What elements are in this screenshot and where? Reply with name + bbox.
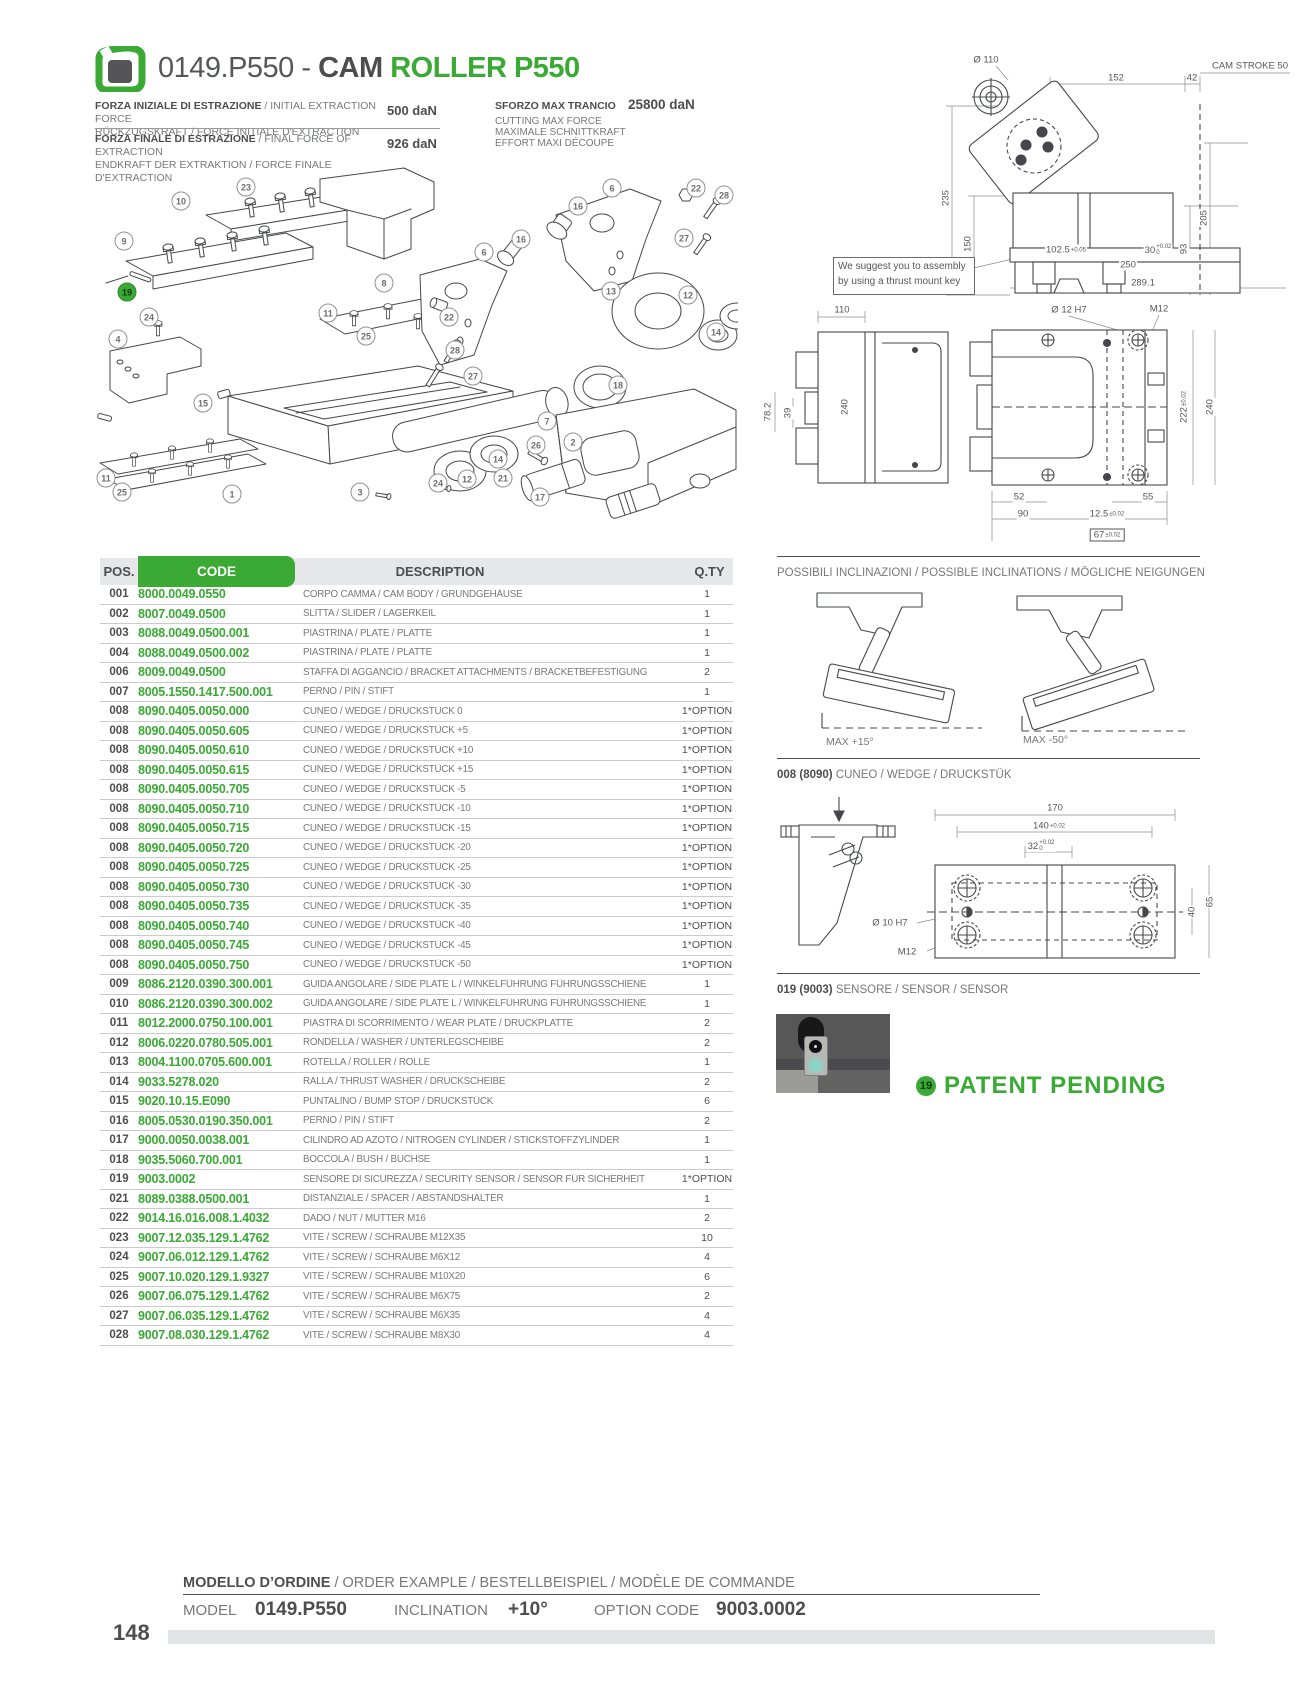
page-title: 0149.P550 - CAM ROLLER P550	[158, 52, 580, 85]
cell-code: 9035.5060.700.001	[138, 1153, 303, 1167]
cell-desc: CORPO CAMMA / CAM BODY / GRUNDGEHÄUSE	[303, 589, 681, 600]
catalog-page: 0149.P550 - CAM ROLLER P550 FORZA INIZIA…	[0, 0, 1303, 1683]
table-row: 0199003.0002SENSORE DI SICUREZZA / SECUR…	[100, 1170, 733, 1190]
cell-desc: BOCCOLA / BUSH / BUCHSE	[303, 1154, 681, 1165]
dimension-label: 289.1	[1130, 278, 1156, 289]
parts-table-body: 0018000.0049.0550CORPO CAMMA / CAM BODY …	[100, 585, 733, 1346]
part-callout-17: 17	[531, 488, 550, 507]
cell-desc: CUNEO / WEDGE / DRUCKSTÜCK -35	[303, 901, 681, 912]
order-heading-rest: / ORDER EXAMPLE / BESTELLBEISPIEL / MODÈ…	[330, 1575, 794, 1591]
part-callout-24: 24	[140, 308, 159, 327]
cell-desc: CUNEO / WEDGE / DRUCKSTÜCK -15	[303, 823, 681, 834]
cell-desc: SENSORE DI SICUREZZA / SECURITY SENSOR /…	[303, 1174, 681, 1185]
cell-pos: 025	[100, 1271, 138, 1283]
cell-pos: 014	[100, 1076, 138, 1088]
cell-desc: DISTANZIALE / SPACER / ABSTANDSHALTER	[303, 1193, 681, 1204]
cell-code: 8090.0405.0050.705	[138, 782, 303, 796]
cell-code: 8005.0530.0190.350.001	[138, 1114, 303, 1128]
cell-qty: 1	[681, 608, 733, 620]
cell-code: 8090.0405.0050.715	[138, 821, 303, 835]
cell-code: 9014.16.016.008.1.4032	[138, 1211, 303, 1225]
table-row: 0088090.0405.0050.735CUNEO / WEDGE / DRU…	[100, 897, 733, 917]
cell-code: 8007.0049.0500	[138, 607, 303, 621]
cell-desc: CUNEO / WEDGE / DRUCKSTÜCK +5	[303, 725, 681, 736]
part-callout-23: 23	[237, 178, 256, 197]
max-cut-value: 25800 daN	[628, 97, 695, 112]
cell-code: 8086.2120.0390.300.001	[138, 977, 303, 991]
cell-qty: 2	[681, 1076, 733, 1088]
cell-desc: CUNEO / WEDGE / DRUCKSTÜCK -40	[303, 920, 681, 931]
title-roller: ROLLER P550	[390, 52, 580, 84]
wedge-art	[777, 795, 1227, 970]
section-divider	[777, 973, 1200, 974]
table-row: 0088090.0405.0050.705CUNEO / WEDGE / DRU…	[100, 780, 733, 800]
cell-qty: 1*OPTION	[681, 803, 733, 815]
inclinations-heading: POSSIBILI INCLINAZIONI / POSSIBLE INCLIN…	[777, 567, 1205, 579]
inclination-art	[777, 588, 1200, 738]
sensor-body	[804, 1036, 828, 1076]
max-cut-title: SFORZO MAX TRANCIO	[495, 100, 616, 112]
part-callout-19: 19	[118, 283, 137, 302]
front-view-drawing: 11078.239240Ø 12 H7M12222±0.02240529012.…	[755, 295, 1225, 545]
cell-code: 8090.0405.0050.730	[138, 880, 303, 894]
part-callout-22: 22	[440, 308, 459, 327]
cell-desc: CUNEO / WEDGE / DRUCKSTÜCK 0	[303, 706, 681, 717]
table-row: 0159020.10.15.E090PUNTALINO / BUMP STOP …	[100, 1092, 733, 1112]
cell-qty: 1*OPTION	[681, 744, 733, 756]
cell-desc: CUNEO / WEDGE / DRUCKSTÜCK +15	[303, 764, 681, 775]
wedge-heading: 008 (8090) CUNEO / WEDGE / DRUCKSTÜK	[777, 769, 1012, 781]
table-row: 0088090.0405.0050.740CUNEO / WEDGE / DRU…	[100, 917, 733, 937]
dimension-label: 222±0.02	[1179, 390, 1190, 424]
cell-code: 9007.06.075.129.1.4762	[138, 1289, 303, 1303]
cell-code: 9007.12.035.129.1.4762	[138, 1231, 303, 1245]
cell-desc: RONDELLA / WASHER / UNTERLEGSCHEIBE	[303, 1037, 681, 1048]
table-row: 0018000.0049.0550CORPO CAMMA / CAM BODY …	[100, 585, 733, 605]
cell-desc: PIASTRA DI SCORRIMENTO / WEAR PLATE / DR…	[303, 1018, 681, 1029]
part-callout-9: 9	[115, 232, 134, 251]
cell-qty: 1	[681, 588, 733, 600]
cell-desc: PUNTALINO / BUMP STOP / DRUCKSTÜCK	[303, 1096, 681, 1107]
dimension-label: Ø 10 H7	[871, 918, 908, 929]
spec-divider	[95, 128, 440, 129]
cell-pos: 021	[100, 1193, 138, 1205]
dimension-label: Ø 12 H7	[1050, 305, 1087, 316]
cell-qty: 1	[681, 1134, 733, 1146]
part-callout-11: 11	[97, 469, 116, 488]
max-cut-line-fr: EFFORT MAXI DÉCOUPE	[495, 138, 614, 149]
part-callout-6: 6	[603, 179, 622, 198]
cell-pos: 028	[100, 1329, 138, 1341]
table-row: 0189035.5060.700.001BOCCOLA / BUSH / BUC…	[100, 1151, 733, 1171]
cell-code: 9033.5278.020	[138, 1075, 303, 1089]
column-header-qty: Q.TY	[686, 558, 733, 585]
part-callout-6: 6	[475, 243, 494, 262]
cell-desc: CUNEO / WEDGE / DRUCKSTÜCK -5	[303, 784, 681, 795]
table-row: 0088090.0405.0050.710CUNEO / WEDGE / DRU…	[100, 800, 733, 820]
cell-desc: CILINDRO AD AZOTO / NITROGEN CYLINDER / …	[303, 1135, 681, 1146]
cell-pos: 008	[100, 725, 138, 737]
table-row: 0088090.0405.0050.615CUNEO / WEDGE / DRU…	[100, 761, 733, 781]
wedge-drawing: 170140+0.0232+0.020Ø 10 H7M124065	[777, 795, 1227, 970]
cell-desc: STAFFA DI AGGANCIO / BRACKET ATTACHMENTS…	[303, 667, 681, 678]
cell-qty: 1	[681, 1193, 733, 1205]
title-code: 0149.P550 -	[158, 52, 318, 84]
cell-code: 8090.0405.0050.615	[138, 763, 303, 777]
cell-pos: 008	[100, 783, 138, 795]
cell-pos: 013	[100, 1056, 138, 1068]
cell-desc: VITE / SCREW / SCHRAUBE M12X35	[303, 1232, 681, 1243]
patent-pending-label: PATENT PENDING	[944, 1072, 1166, 1100]
dimension-label: 110	[833, 305, 850, 316]
parts-table-header: POS. CODE DESCRIPTION Q.TY	[100, 558, 733, 585]
cell-qty: 1*OPTION	[681, 939, 733, 951]
cell-desc: CUNEO / WEDGE / DRUCKSTÜCK +10	[303, 745, 681, 756]
cell-pos: 024	[100, 1251, 138, 1263]
cell-pos: 008	[100, 744, 138, 756]
cell-pos: 010	[100, 998, 138, 1010]
cell-qty: 1	[681, 998, 733, 1010]
option-code-label: OPTION CODE	[594, 1602, 699, 1619]
cell-qty: 1*OPTION	[681, 822, 733, 834]
part-callout-27: 27	[675, 229, 694, 248]
cell-desc: RALLA / THRUST WASHER / DRUCKSCHEIBE	[303, 1076, 681, 1087]
cell-code: 8088.0049.0500.001	[138, 626, 303, 640]
dimension-label: 102.5+0.05	[1045, 245, 1087, 256]
cell-pos: 018	[100, 1154, 138, 1166]
cell-code: 9020.10.15.E090	[138, 1094, 303, 1108]
dimension-label: 235	[941, 189, 952, 207]
cell-pos: 008	[100, 959, 138, 971]
table-row: 0088090.0405.0050.715CUNEO / WEDGE / DRU…	[100, 819, 733, 839]
cell-pos: 007	[100, 686, 138, 698]
dimension-label: 12.5±0.02	[1089, 509, 1125, 520]
dimension-label: 78.2	[763, 402, 774, 423]
cell-qty: 1*OPTION	[681, 842, 733, 854]
part-callout-25: 25	[357, 327, 376, 346]
cell-code: 9007.10.020.129.1.9327	[138, 1270, 303, 1284]
cell-code: 8004.1100.0705.600.001	[138, 1055, 303, 1069]
cell-qty: 2	[681, 1037, 733, 1049]
cell-pos: 008	[100, 881, 138, 893]
front-view-art	[755, 295, 1225, 545]
cell-desc: VITE / SCREW / SCHRAUBE M6X12	[303, 1252, 681, 1263]
cell-code: 8006.0220.0780.505.001	[138, 1036, 303, 1050]
table-row: 0088090.0405.0050.750CUNEO / WEDGE / DRU…	[100, 956, 733, 976]
cell-desc: GUIDA ANGOLARE / SIDE PLATE L / WINKELFÜ…	[303, 979, 681, 990]
part-callout-12: 12	[458, 470, 477, 489]
cell-pos: 008	[100, 822, 138, 834]
sensor-heading: 019 (9003) SENSORE / SENSOR / SENSOR	[777, 984, 1008, 996]
table-row: 0108086.2120.0390.300.002GUIDA ANGOLARE …	[100, 995, 733, 1015]
table-row: 0179000.0050.0038.001CILINDRO AD AZOTO /…	[100, 1131, 733, 1151]
cell-code: 8086.2120.0390.300.002	[138, 997, 303, 1011]
dimension-label: 52	[1013, 492, 1026, 503]
cell-code: 8090.0405.0050.745	[138, 938, 303, 952]
cell-pos: 002	[100, 608, 138, 620]
table-row: 0239007.12.035.129.1.4762VITE / SCREW / …	[100, 1229, 733, 1249]
cell-code: 8090.0405.0050.610	[138, 743, 303, 757]
exploded-view-diagram: 1023919244151125112518226162827166222827…	[88, 163, 738, 523]
cell-pos: 011	[100, 1017, 138, 1029]
cell-desc: VITE / SCREW / SCHRAUBE M8X30	[303, 1330, 681, 1341]
cell-desc: CUNEO / WEDGE / DRUCKSTÜCK -10	[303, 803, 681, 814]
cell-code: 8090.0405.0050.000	[138, 704, 303, 718]
cell-pos: 008	[100, 764, 138, 776]
table-row: 0138004.1100.0705.600.001ROTELLA / ROLLE…	[100, 1053, 733, 1073]
cell-code: 8000.0049.0550	[138, 587, 303, 601]
cell-pos: 004	[100, 647, 138, 659]
cell-qty: 2	[681, 1290, 733, 1302]
cell-qty: 1*OPTION	[681, 705, 733, 717]
cell-pos: 009	[100, 978, 138, 990]
cell-code: 8009.0049.0500	[138, 665, 303, 679]
dimension-label: 39	[783, 407, 794, 420]
part-callout-4: 4	[109, 330, 128, 349]
cell-code: 8090.0405.0050.725	[138, 860, 303, 874]
cell-qty: 1*OPTION	[681, 920, 733, 932]
inclination-value: +10°	[508, 1599, 548, 1621]
assembly-note: We suggest you to assembly by using a th…	[833, 257, 975, 295]
cell-desc: VITE / SCREW / SCHRAUBE M6X75	[303, 1291, 681, 1302]
cell-pos: 008	[100, 803, 138, 815]
sensor-button	[808, 1058, 823, 1073]
cell-code: 9000.0050.0038.001	[138, 1133, 303, 1147]
assembly-note-line2: by using a thrust mount key	[838, 274, 970, 289]
part-callout-25: 25	[113, 483, 132, 502]
dimension-label: M12	[1149, 304, 1169, 315]
cell-desc: GUIDA ANGOLARE / SIDE PLATE L / WINKELFÜ…	[303, 998, 681, 1009]
dimension-label: 90	[1017, 509, 1030, 520]
cell-qty: 1*OPTION	[681, 1173, 733, 1185]
cell-qty: 1	[681, 647, 733, 659]
table-row: 0088090.0405.0050.605CUNEO / WEDGE / DRU…	[100, 722, 733, 742]
cell-qty: 1*OPTION	[681, 764, 733, 776]
dimension-label: 240	[1205, 398, 1216, 416]
cell-desc: PIASTRINA / PLATE / PLATTE	[303, 647, 681, 658]
table-row: 0088090.0405.0050.725CUNEO / WEDGE / DRU…	[100, 858, 733, 878]
cell-desc: ROTELLA / ROLLER / ROLLE	[303, 1057, 681, 1068]
section-divider	[777, 556, 1200, 557]
patent-badge-19: 19	[916, 1076, 936, 1096]
table-row: 0088090.0405.0050.000CUNEO / WEDGE / DRU…	[100, 702, 733, 722]
dimension-label: 67±0.02	[1090, 529, 1125, 542]
table-row: 0078005.1550.1417.500.001PERNO / PIN / S…	[100, 683, 733, 703]
dimension-label: 30+0.020	[1144, 244, 1173, 256]
dimension-label: 152	[1107, 73, 1125, 84]
cell-code: 8089.0388.0500.001	[138, 1192, 303, 1206]
cell-pos: 008	[100, 920, 138, 932]
table-row: 0088090.0405.0050.610CUNEO / WEDGE / DRU…	[100, 741, 733, 761]
cell-code: 8090.0405.0050.735	[138, 899, 303, 913]
final-force-value: 926 daN	[387, 136, 437, 151]
part-callout-14: 14	[707, 323, 726, 342]
sensor-heading-pos: 019 (9003)	[777, 984, 833, 996]
cell-qty: 1	[681, 627, 733, 639]
cell-qty: 6	[681, 1271, 733, 1283]
table-row: 0289007.08.030.129.1.4762VITE / SCREW / …	[100, 1326, 733, 1346]
cell-pos: 017	[100, 1134, 138, 1146]
part-callout-26: 26	[527, 436, 546, 455]
cell-qty: 1*OPTION	[681, 783, 733, 795]
table-row: 0149033.5278.020RALLA / THRUST WASHER / …	[100, 1073, 733, 1093]
cell-pos: 008	[100, 861, 138, 873]
cell-desc: CUNEO / WEDGE / DRUCKSTÜCK -20	[303, 842, 681, 853]
cell-code: 8090.0405.0050.710	[138, 802, 303, 816]
cell-qty: 4	[681, 1329, 733, 1341]
wedge-heading-text: CUNEO / WEDGE / DRUCKSTÜK	[833, 769, 1012, 781]
sensor-heading-text: SENSORE / SENSOR / SENSOR	[833, 984, 1009, 996]
dimension-label: M12	[897, 947, 917, 958]
part-callout-7: 7	[538, 412, 557, 431]
part-callout-18: 18	[609, 376, 628, 395]
part-callout-13: 13	[602, 282, 621, 301]
cell-qty: 4	[681, 1310, 733, 1322]
side-view-drawing: Ø 11015242CAM STROKE 5023515020593102.5+…	[938, 48, 1303, 298]
cell-pos: 016	[100, 1115, 138, 1127]
cell-pos: 027	[100, 1310, 138, 1322]
cell-qty: 2	[681, 1212, 733, 1224]
cell-qty: 10	[681, 1232, 733, 1244]
brand-logo	[95, 46, 147, 92]
order-heading-underline	[183, 1594, 1040, 1595]
cell-code: 9007.08.030.129.1.4762	[138, 1328, 303, 1342]
cell-qty: 1*OPTION	[681, 959, 733, 971]
table-row: 0229014.16.016.008.1.4032DADO / NUT / MU…	[100, 1209, 733, 1229]
photo-background	[776, 1014, 890, 1061]
cell-code: 8090.0405.0050.750	[138, 958, 303, 972]
sensor-lens	[809, 1040, 822, 1053]
table-row: 0259007.10.020.129.1.9327VITE / SCREW / …	[100, 1268, 733, 1288]
table-row: 0218089.0388.0500.001DISTANZIALE / SPACE…	[100, 1190, 733, 1210]
cell-pos: 008	[100, 900, 138, 912]
table-row: 0028007.0049.0500SLITTA / SLIDER / LAGER…	[100, 605, 733, 625]
table-row: 0269007.06.075.129.1.4762VITE / SCREW / …	[100, 1287, 733, 1307]
cell-code: 8090.0405.0050.720	[138, 841, 303, 855]
initial-force-value: 500 daN	[387, 103, 437, 118]
cell-code: 8090.0405.0050.605	[138, 724, 303, 738]
part-callout-11: 11	[319, 304, 338, 323]
cell-code: 8012.2000.0750.100.001	[138, 1016, 303, 1030]
cell-pos: 001	[100, 588, 138, 600]
dimension-label: 40	[1187, 906, 1198, 919]
cell-pos: 015	[100, 1095, 138, 1107]
dimension-label: 150	[963, 235, 974, 253]
dimension-label: 140+0.02	[1032, 821, 1066, 832]
model-label: MODEL	[183, 1602, 236, 1619]
cell-pos: 003	[100, 627, 138, 639]
cell-qty: 1*OPTION	[681, 900, 733, 912]
table-row: 0068009.0049.0500STAFFA DI AGGANCIO / BR…	[100, 663, 733, 683]
option-code-value: 9003.0002	[716, 1599, 806, 1621]
max-positive-label: MAX +15°	[826, 736, 874, 748]
cell-code: 9007.06.012.129.1.4762	[138, 1250, 303, 1264]
cell-pos: 012	[100, 1037, 138, 1049]
max-cut-line-de: MAXIMALE SCHNITTKRAFT	[495, 127, 626, 138]
order-example-heading: MODELLO D’ORDINE / ORDER EXAMPLE / BESTE…	[183, 1575, 795, 1591]
cell-qty: 1	[681, 686, 733, 698]
sensor-photo	[776, 1014, 890, 1093]
cell-qty: 4	[681, 1251, 733, 1263]
cell-code: 8005.1550.1417.500.001	[138, 685, 303, 699]
part-callout-24: 24	[429, 474, 448, 493]
dimension-label: 93	[1179, 243, 1190, 256]
cell-pos: 008	[100, 939, 138, 951]
cell-pos: 026	[100, 1290, 138, 1302]
inclination-label: INCLINATION	[394, 1602, 488, 1619]
dimension-label: 65	[1205, 896, 1216, 909]
cell-desc: SLITTA / SLIDER / LAGERKEIL	[303, 608, 681, 619]
cell-code: 9003.0002	[138, 1172, 303, 1186]
dimension-label: CAM STROKE 50	[1211, 61, 1289, 72]
table-row: 0168005.0530.0190.350.001PERNO / PIN / S…	[100, 1112, 733, 1132]
cell-desc: CUNEO / WEDGE / DRUCKSTÜCK -30	[303, 881, 681, 892]
part-callout-16: 16	[512, 230, 531, 249]
part-callout-3: 3	[351, 483, 370, 502]
cell-qty: 1*OPTION	[681, 861, 733, 873]
table-row: 0279007.06.035.129.1.4762VITE / SCREW / …	[100, 1307, 733, 1327]
part-callout-1: 1	[223, 485, 242, 504]
section-divider	[777, 758, 1200, 759]
cell-pos: 019	[100, 1173, 138, 1185]
cell-desc: CUNEO / WEDGE / DRUCKSTÜCK -45	[303, 940, 681, 951]
title-cam: CAM	[318, 52, 390, 84]
part-callout-22: 22	[687, 179, 706, 198]
table-row: 0088090.0405.0050.730CUNEO / WEDGE / DRU…	[100, 878, 733, 898]
cell-pos: 008	[100, 705, 138, 717]
model-value: 0149.P550	[255, 1599, 347, 1621]
part-callout-10: 10	[172, 192, 191, 211]
inclination-diagrams: MAX +15° MAX -50°	[777, 588, 1200, 753]
cell-code: 8088.0049.0500.002	[138, 646, 303, 660]
cell-pos: 023	[100, 1232, 138, 1244]
part-callout-27: 27	[464, 367, 483, 386]
column-header-code: CODE	[138, 556, 295, 587]
page-number: 148	[113, 1620, 150, 1646]
cell-code: 8090.0405.0050.740	[138, 919, 303, 933]
cell-pos: 008	[100, 842, 138, 854]
order-heading-it: MODELLO D’ORDINE	[183, 1575, 330, 1591]
column-header-description: DESCRIPTION	[300, 558, 580, 585]
max-cut-line-en: CUTTING MAX FORCE	[495, 116, 602, 127]
cell-code: 9007.06.035.129.1.4762	[138, 1309, 303, 1323]
table-row: 0088090.0405.0050.745CUNEO / WEDGE / DRU…	[100, 936, 733, 956]
cell-qty: 1	[681, 978, 733, 990]
table-row: 0088090.0405.0050.720CUNEO / WEDGE / DRU…	[100, 839, 733, 859]
dimension-label: 240	[840, 398, 851, 416]
part-callout-16: 16	[569, 197, 588, 216]
cell-pos: 022	[100, 1212, 138, 1224]
part-callout-14: 14	[489, 450, 508, 469]
dimension-label: 170	[1046, 803, 1064, 814]
part-callout-2: 2	[564, 433, 583, 452]
part-callout-21: 21	[494, 469, 513, 488]
dimension-label: 32+0.020	[1027, 840, 1056, 852]
cell-qty: 1	[681, 1154, 733, 1166]
dimension-label: 55	[1142, 492, 1155, 503]
cell-qty: 1*OPTION	[681, 725, 733, 737]
cell-desc: CUNEO / WEDGE / DRUCKSTÜCK -50	[303, 959, 681, 970]
cell-qty: 1*OPTION	[681, 881, 733, 893]
dimension-label: Ø 110	[972, 55, 999, 66]
part-callout-28: 28	[715, 186, 734, 205]
table-row: 0128006.0220.0780.505.001RONDELLA / WASH…	[100, 1034, 733, 1054]
table-row: 0098086.2120.0390.300.001GUIDA ANGOLARE …	[100, 975, 733, 995]
photo-band	[776, 1059, 890, 1070]
cell-desc: PERNO / PIN / STIFT	[303, 686, 681, 697]
exploded-callouts: 1023919244151125112518226162827166222827…	[88, 163, 738, 523]
cell-desc: VITE / SCREW / SCHRAUBE M10X20	[303, 1271, 681, 1282]
